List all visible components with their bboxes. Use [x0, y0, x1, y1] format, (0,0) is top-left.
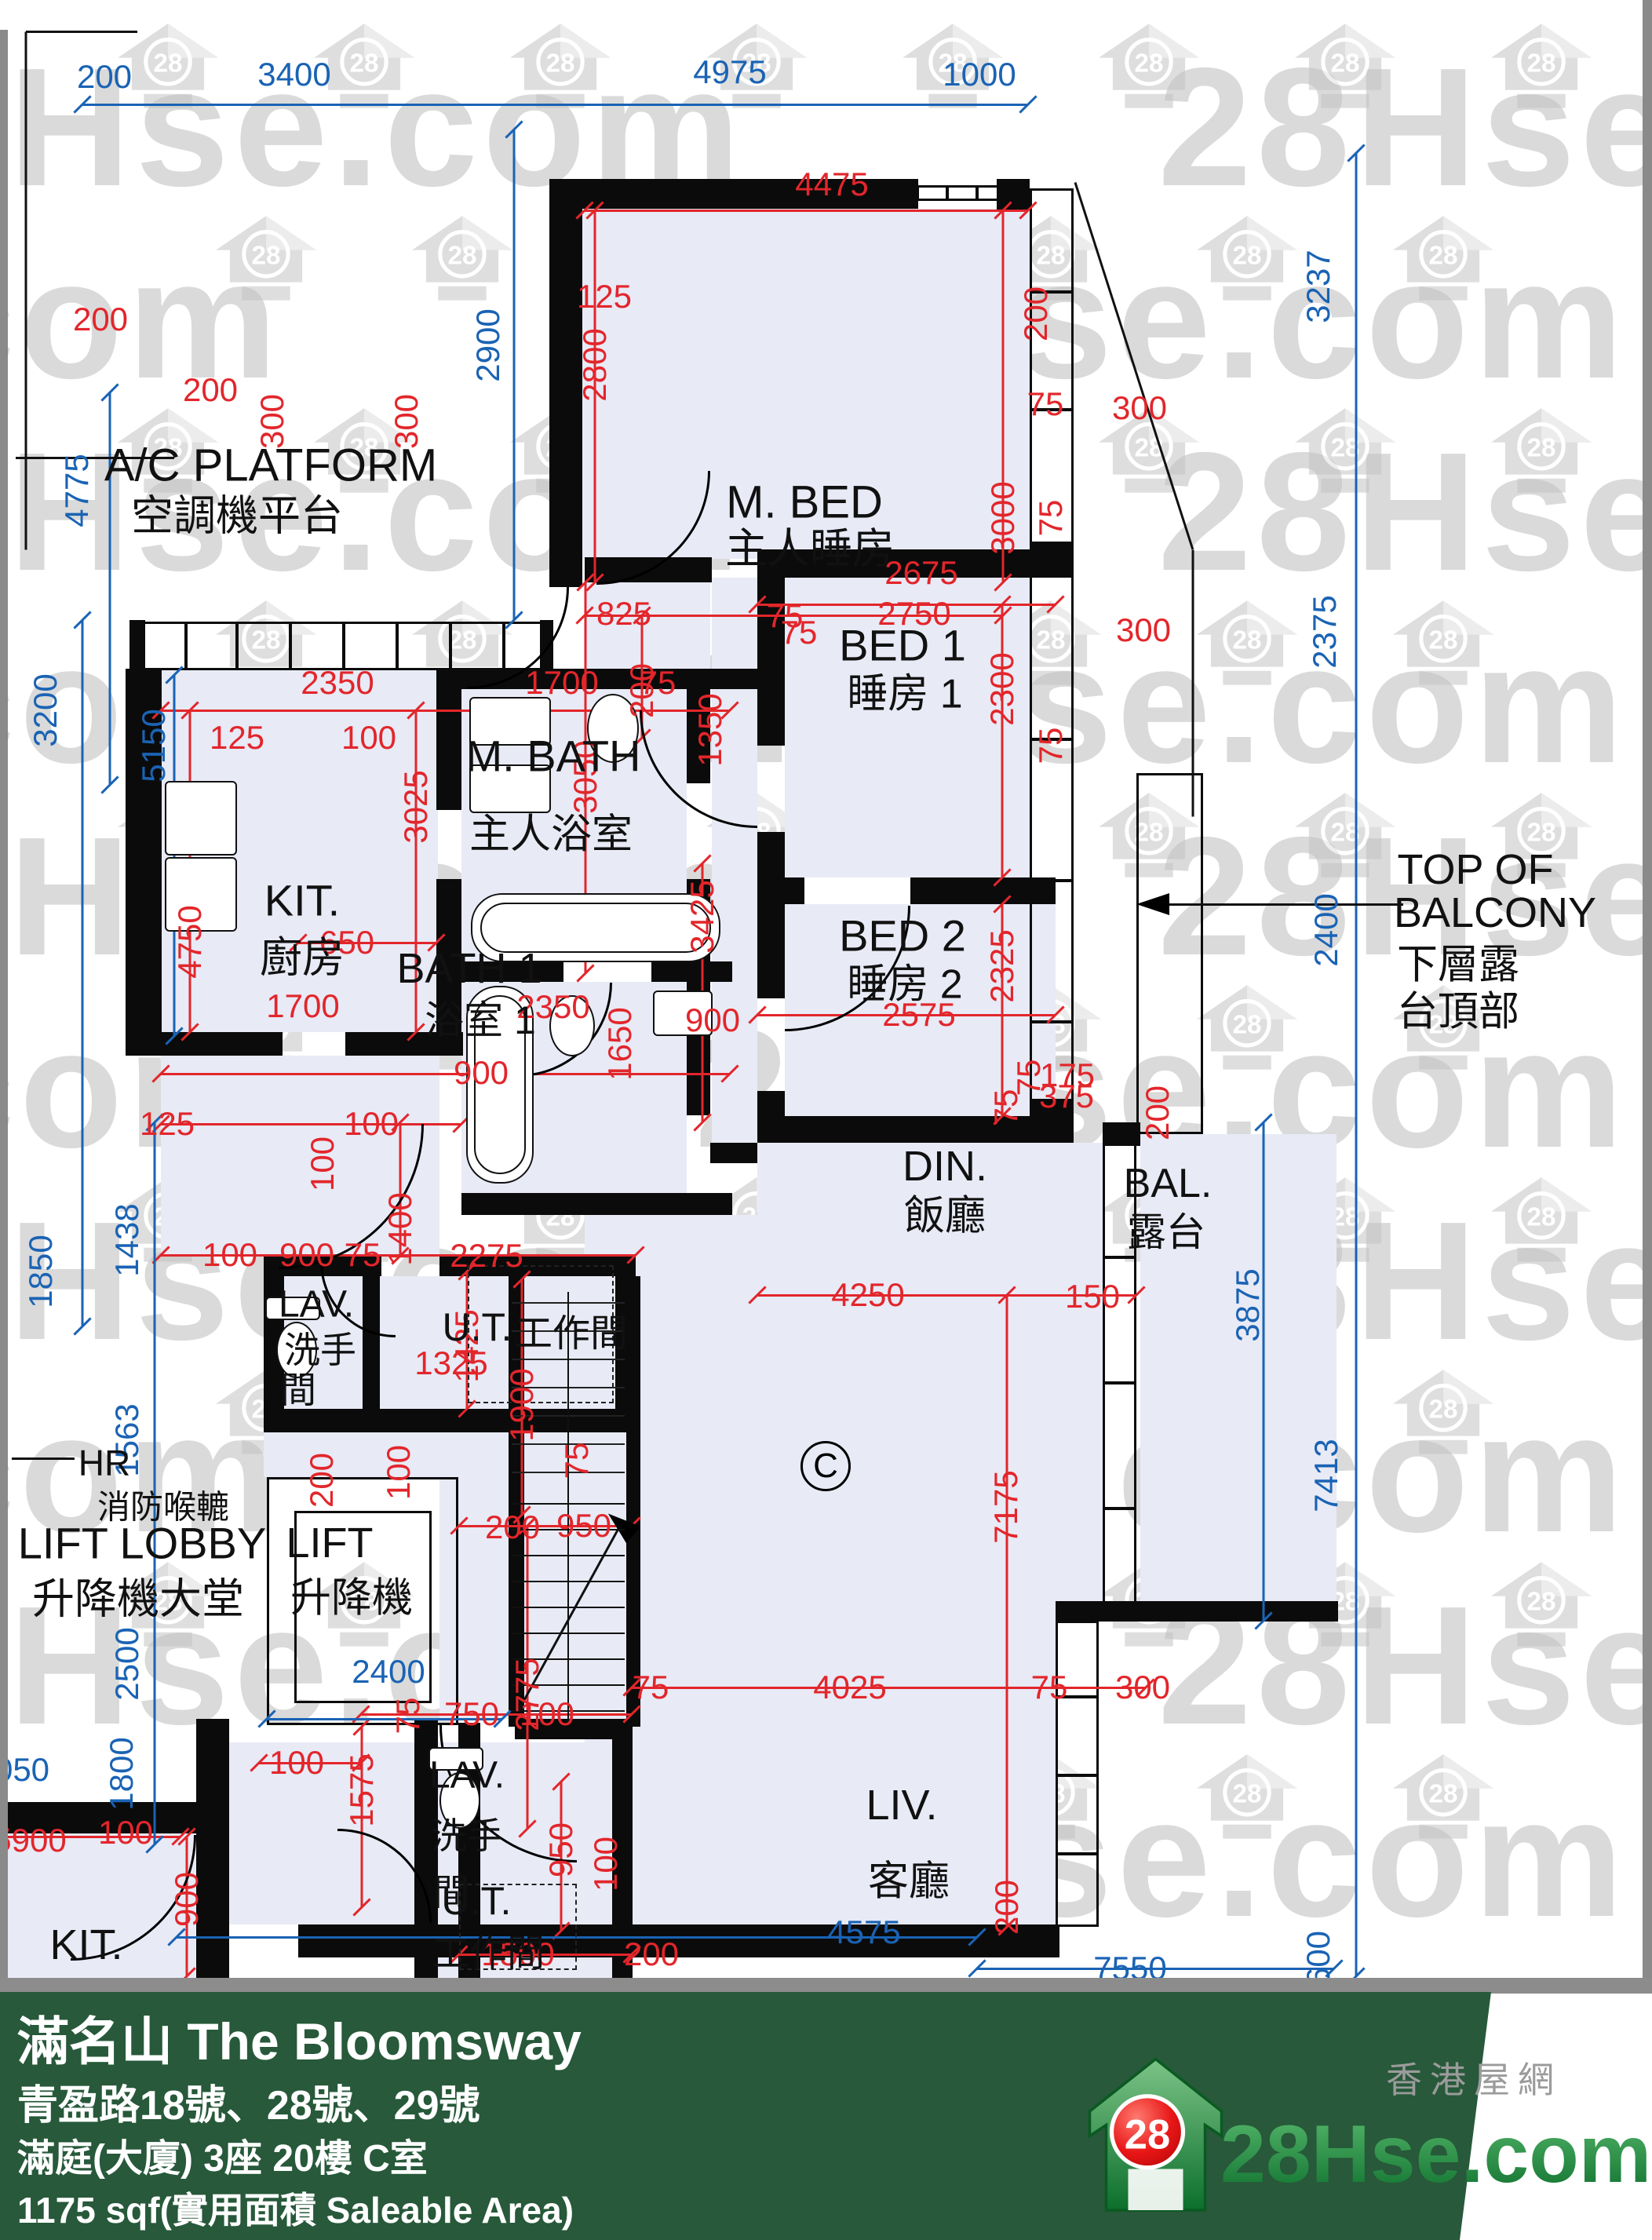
- dimension-950: 950: [556, 1507, 611, 1545]
- balcony-arrow: [1136, 893, 1169, 915]
- dimension-75: 75: [640, 664, 676, 702]
- dimension-950: 950: [542, 1822, 580, 1877]
- window-mullion: [1103, 1381, 1136, 1384]
- dimension-75: 75: [633, 1669, 669, 1706]
- window-frame: [917, 185, 1030, 201]
- label-BAL.: BAL.: [1124, 1160, 1213, 1207]
- 28hse-logo: 香港屋網 28 28Hse.com: [1087, 2041, 1605, 2240]
- label-台頂部: 台頂部: [1397, 979, 1519, 1038]
- watermark-house-icon: [1393, 600, 1493, 693]
- dimension-200: 200: [1139, 1085, 1176, 1140]
- dimension-3200: 3200: [27, 673, 64, 746]
- dimension-1800: 1800: [103, 1737, 140, 1810]
- brand-wordmark: 28Hse.com: [1220, 2108, 1651, 2202]
- watermark-house-icon: [1295, 24, 1395, 116]
- label-露台: 露台: [1127, 1201, 1205, 1257]
- dimension-200: 200: [624, 1935, 679, 1973]
- dimension-1700: 1700: [525, 664, 598, 702]
- dimension-100: 100: [98, 1814, 153, 1851]
- label-LAV.: LAV.: [279, 1283, 354, 1326]
- dimension-4475: 4475: [795, 166, 868, 203]
- dimension-100: 100: [269, 1744, 324, 1782]
- dimension-100: 100: [202, 1236, 257, 1274]
- dimension-1325: 1325: [414, 1344, 487, 1382]
- label-工作間: 工作間: [515, 1302, 628, 1357]
- label-主人浴室: 主人浴室: [469, 801, 633, 860]
- dimension-7175: 7175: [987, 1470, 1025, 1543]
- dim-line-red: [1001, 604, 1004, 877]
- wall: [264, 1409, 636, 1432]
- label-升降機: 升降機: [290, 1565, 413, 1624]
- wall: [651, 961, 732, 982]
- fixture: [165, 781, 237, 856]
- watermark-house-icon: [1491, 24, 1592, 116]
- dim-line-blue: [1263, 1122, 1265, 1621]
- label-工作間: 工作間: [432, 1922, 545, 1977]
- window-mullion: [184, 622, 188, 670]
- label-TOP OF: TOP OF: [1397, 845, 1553, 894]
- dimension-1850: 1850: [22, 1235, 60, 1308]
- label-KIT.: KIT.: [264, 875, 340, 926]
- label-LIV.: LIV.: [866, 1781, 937, 1830]
- watermark-house-icon: [412, 216, 512, 308]
- floorplan-canvas: 28Hse.com 28Hse.com28Hse.com 28Hse.com28…: [0, 0, 1652, 2240]
- watermark-house-icon: [1491, 408, 1592, 501]
- dimension-4775: 4775: [58, 454, 96, 527]
- dimension-5150: 5150: [135, 709, 173, 782]
- dim-line-blue: [173, 675, 176, 1036]
- watermark-house-icon: [1197, 1754, 1297, 1847]
- dimension-300: 300: [1112, 389, 1167, 427]
- dimension-75: 75: [345, 1236, 381, 1274]
- label-主人睡房: 主人睡房: [725, 514, 895, 576]
- dim-line-blue: [82, 620, 84, 1326]
- dimension-200: 200: [1017, 286, 1055, 341]
- wall: [757, 877, 804, 904]
- dim-line-red: [161, 1073, 730, 1075]
- wall: [436, 669, 461, 810]
- dimension-200: 200: [485, 1509, 540, 1546]
- label-BALCONY: BALCONY: [1394, 888, 1596, 937]
- label-間: 間: [433, 1864, 469, 1916]
- dimension-100: 100: [587, 1837, 625, 1892]
- dimension-200: 200: [988, 1880, 1026, 1935]
- wall: [626, 1276, 640, 1727]
- dim-line-red: [1006, 1295, 1008, 1927]
- watermark-house-icon: [510, 24, 611, 116]
- dimension-2400: 2400: [1307, 893, 1345, 966]
- room-fill: [1056, 1143, 1103, 1601]
- watermark-house-icon: [1197, 985, 1297, 1078]
- dimension-2350: 2350: [301, 664, 374, 702]
- watermark-house-icon: [1197, 600, 1297, 693]
- watermark-house-icon: [1295, 793, 1395, 885]
- dimension-100: 100: [341, 719, 396, 757]
- dim-line-blue: [82, 104, 1028, 106]
- wall: [461, 1193, 732, 1215]
- dimension-2275: 2275: [450, 1237, 523, 1275]
- watermark-house-icon: [1197, 216, 1297, 308]
- dimension-100: 100: [344, 1105, 399, 1143]
- wall: [710, 1143, 757, 1163]
- saleable-area: 1175 sqf(實用面積 Saleable Area): [17, 2182, 574, 2234]
- dimension-900: 900: [279, 1236, 334, 1274]
- label-空調機平台: 空調機平台: [131, 481, 343, 543]
- label-HR: HR: [78, 1442, 130, 1484]
- dimension-3000: 3000: [984, 481, 1022, 554]
- dimension-75: 75: [558, 1443, 596, 1479]
- unit-info: 滿庭(大廈) 3座 20樓 C室: [17, 2127, 428, 2182]
- label-間: 間: [280, 1362, 316, 1414]
- dimension-3875: 3875: [1229, 1268, 1267, 1341]
- window-mullion: [1056, 1774, 1099, 1777]
- label-廚房: 廚房: [260, 923, 345, 985]
- label-KIT.: KIT.: [49, 1921, 122, 1969]
- dimension-4025: 4025: [813, 1669, 886, 1706]
- label-睡房 1: 睡房 1: [847, 661, 962, 720]
- dim-line-red: [632, 1687, 1146, 1689]
- dimension-1900: 1900: [503, 1368, 541, 1441]
- dimension-3425: 3425: [684, 880, 721, 953]
- dimension-2675: 2675: [884, 554, 957, 592]
- dimension-125: 125: [577, 278, 632, 316]
- label-LIFT LOBBY: LIFT LOBBY: [18, 1518, 266, 1569]
- wall: [1103, 1601, 1338, 1622]
- dimension-1000: 1000: [943, 56, 1016, 93]
- dim-line-blue: [513, 130, 516, 620]
- unit-mark: C: [800, 1441, 851, 1491]
- dimension-200: 200: [77, 58, 132, 96]
- site-chinese-name: 香港屋網: [1386, 2052, 1562, 2103]
- dimension-4750: 4750: [171, 905, 209, 978]
- wall: [757, 904, 785, 998]
- label-BATH 1: BATH 1: [396, 944, 542, 993]
- watermark-house-icon: [1099, 24, 1199, 116]
- dimension-750: 750: [444, 1695, 499, 1733]
- window-mullion: [342, 622, 345, 670]
- dimension-825: 825: [596, 595, 651, 633]
- dimension-200: 200: [183, 371, 238, 409]
- wall: [1056, 1601, 1103, 1622]
- dimension-300: 300: [1115, 1669, 1170, 1706]
- dimension-75: 75: [1027, 385, 1064, 423]
- dimension-2500: 2500: [108, 1627, 146, 1700]
- label-M. BATH: M. BATH: [466, 731, 641, 782]
- watermark-house-icon: [216, 216, 316, 308]
- watermark-house-icon: [1491, 1177, 1592, 1270]
- watermark-house-icon: [118, 24, 218, 116]
- dimension-100: 100: [304, 1136, 341, 1191]
- label-升降機大堂: 升降機大堂: [32, 1564, 244, 1626]
- dimension-300: 300: [1116, 611, 1171, 649]
- label-洗手: 洗手: [431, 1808, 503, 1859]
- watermark-house-icon: [1393, 1754, 1493, 1847]
- label-浴室 1: 浴室 1: [425, 989, 536, 1045]
- dimension-75: 75: [1032, 500, 1070, 537]
- leader-line: [1192, 549, 1194, 816]
- svg-text:28: 28: [1125, 2111, 1170, 2158]
- wall: [126, 1032, 283, 1056]
- window-mullion: [1056, 1852, 1099, 1855]
- leader-line: [26, 31, 137, 33]
- dimension-100: 100: [380, 1445, 418, 1500]
- dimension-2325: 2325: [983, 929, 1021, 1002]
- dimension-4575: 4575: [827, 1913, 900, 1951]
- dimension-125: 125: [210, 719, 264, 757]
- room-fill: [585, 1215, 1056, 1924]
- estate-title: 滿名山 The Bloomsway: [17, 2000, 582, 2075]
- dimension-375: 375: [1039, 1078, 1094, 1115]
- dimension-7413: 7413: [1307, 1439, 1345, 1512]
- dim-line-red: [585, 210, 1028, 212]
- window-mullion: [1005, 185, 1008, 201]
- dimension-125: 125: [140, 1105, 195, 1143]
- dimension-200: 200: [303, 1453, 341, 1508]
- window-mullion: [235, 622, 239, 670]
- leader-line: [1146, 903, 1403, 906]
- label-客廳: 客廳: [868, 1848, 950, 1907]
- dimension-5900: 5900: [0, 1822, 67, 1859]
- window-mullion: [1030, 549, 1074, 553]
- watermark-house-icon: [1393, 216, 1493, 308]
- dimension-4975: 4975: [693, 53, 766, 91]
- watermark-house-icon: [1491, 1562, 1592, 1654]
- window-mullion: [1030, 879, 1074, 882]
- window-mullion: [976, 185, 979, 201]
- window-mullion: [289, 622, 292, 670]
- watermark-house-icon: [1295, 408, 1395, 501]
- dimension-2800: 2800: [576, 328, 614, 401]
- dimension-3400: 3400: [257, 56, 330, 93]
- leader-line: [12, 1457, 75, 1460]
- dimension-3025: 3025: [397, 770, 435, 843]
- dimension-75: 75: [987, 1089, 1025, 1126]
- dimension-200: 200: [73, 301, 128, 338]
- window-frame: [1136, 773, 1203, 1134]
- dimension-75: 75: [1031, 1669, 1068, 1706]
- dimension-2900: 2900: [469, 308, 507, 381]
- dimension-75: 75: [781, 614, 818, 651]
- dimension-100: 100: [520, 1695, 574, 1733]
- dimension-2375: 2375: [1306, 595, 1344, 668]
- dimension-4250: 4250: [831, 1276, 904, 1314]
- dimension-900: 900: [168, 1872, 206, 1927]
- leader-line: [25, 31, 27, 549]
- left-gray-bar: [0, 30, 8, 1978]
- label-LIFT: LIFT: [286, 1519, 373, 1567]
- dimension-2400: 2400: [352, 1653, 425, 1691]
- dimension-1575: 1575: [343, 1753, 381, 1826]
- divider-strip: [0, 1978, 1652, 1994]
- label-睡房 2: 睡房 2: [847, 951, 962, 1010]
- window-mullion: [396, 622, 399, 670]
- window-mullion: [449, 622, 452, 670]
- label-U.T.: U.T.: [443, 1304, 512, 1350]
- dimension-900: 900: [685, 1001, 740, 1039]
- window-mullion: [1103, 1507, 1136, 1510]
- logo-house-icon: 28: [1087, 2056, 1224, 2221]
- dim-line-blue: [1355, 153, 1358, 1976]
- dimension-1650: 1650: [601, 1007, 639, 1080]
- dimension-1700: 1700: [266, 987, 339, 1025]
- wall: [710, 669, 757, 689]
- room-fill: [712, 578, 757, 1143]
- dimension-1400: 1400: [381, 1192, 419, 1265]
- dimension-75: 75: [389, 1698, 427, 1735]
- watermark-house-icon: [1393, 1370, 1493, 1462]
- right-gray-bar: [1643, 0, 1652, 1992]
- window-mullion: [1030, 1020, 1074, 1023]
- estate-address: 青盈路18號、28號、29號: [17, 2072, 480, 2131]
- dimension-150: 150: [1065, 1278, 1120, 1315]
- dimension-1350: 1350: [691, 693, 729, 766]
- dimension-75: 75: [1032, 728, 1070, 764]
- window-mullion: [946, 185, 949, 201]
- dimension-1438: 1438: [108, 1203, 146, 1276]
- dimension-2300: 2300: [983, 652, 1021, 725]
- dimension-3237: 3237: [1300, 250, 1337, 323]
- dimension-900: 900: [454, 1054, 509, 1092]
- label-LAV.: LAV.: [429, 1754, 505, 1797]
- wall: [196, 1719, 229, 1978]
- label-飯廳: 飯廳: [904, 1183, 986, 1242]
